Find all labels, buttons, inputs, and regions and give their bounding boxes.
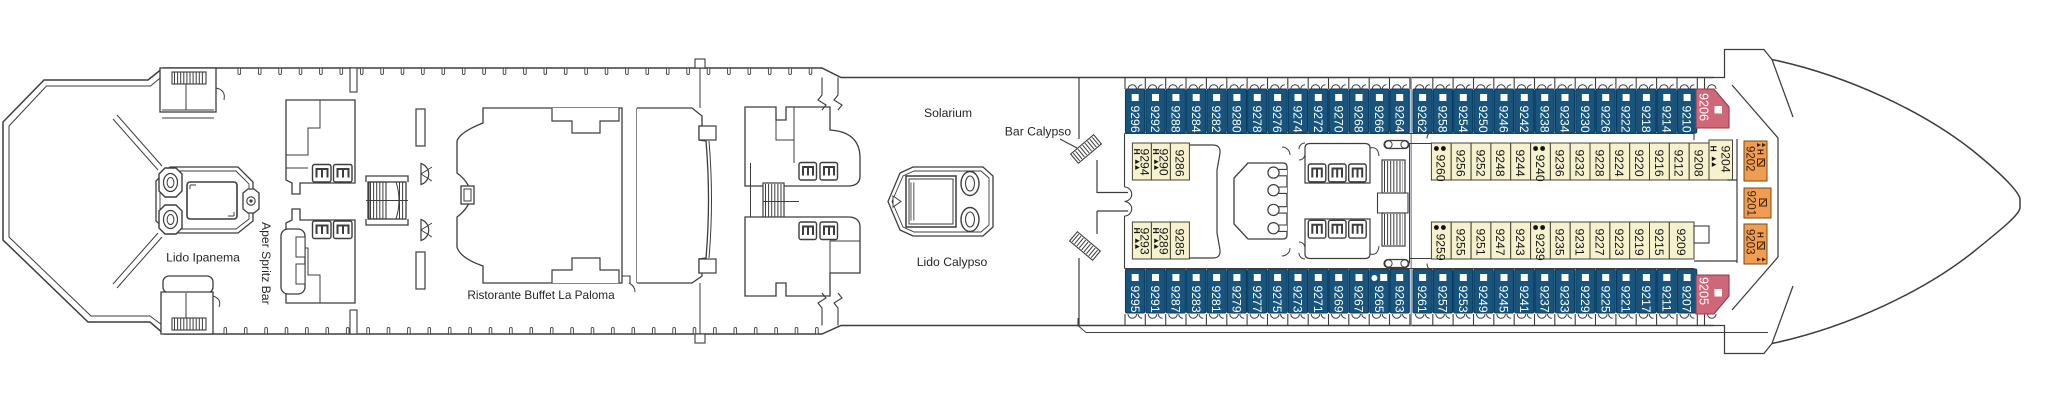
svg-text:H: H	[1756, 232, 1765, 238]
svg-text:9216: 9216	[1652, 150, 1666, 177]
svg-text:9275: 9275	[1270, 286, 1284, 313]
svg-text:9248: 9248	[1493, 150, 1507, 177]
svg-text:9286: 9286	[1172, 150, 1186, 177]
svg-text:9237: 9237	[1537, 286, 1551, 313]
svg-text:9268: 9268	[1352, 106, 1366, 133]
svg-text:9206: 9206	[1697, 93, 1711, 121]
svg-text:9229: 9229	[1578, 286, 1592, 313]
svg-text:9219: 9219	[1632, 229, 1646, 256]
svg-text:9238: 9238	[1537, 106, 1551, 133]
svg-text:H: H	[1151, 228, 1161, 234]
svg-text:9234: 9234	[1558, 106, 1572, 133]
svg-text:9276: 9276	[1270, 106, 1284, 133]
svg-text:9205: 9205	[1697, 277, 1711, 305]
svg-text:9209: 9209	[1674, 229, 1688, 256]
svg-text:9225: 9225	[1598, 286, 1612, 313]
svg-text:9233: 9233	[1558, 286, 1572, 313]
svg-text:9266: 9266	[1372, 106, 1386, 133]
svg-text:9243: 9243	[1513, 229, 1527, 256]
svg-text:9242: 9242	[1517, 106, 1531, 133]
svg-text:9260: 9260	[1434, 155, 1448, 182]
svg-text:Aper Spritz Bar: Aper Spritz Bar	[259, 222, 273, 305]
svg-text:9274: 9274	[1291, 106, 1305, 133]
svg-text:9252: 9252	[1473, 150, 1487, 177]
svg-text:9239: 9239	[1533, 234, 1547, 261]
svg-text:9231: 9231	[1573, 229, 1587, 256]
svg-text:9283: 9283	[1189, 286, 1203, 313]
svg-text:9292: 9292	[1148, 106, 1162, 133]
svg-text:9272: 9272	[1311, 106, 1325, 133]
svg-text:9246: 9246	[1497, 106, 1511, 133]
svg-text:H: H	[1756, 149, 1765, 155]
svg-text:9258: 9258	[1436, 106, 1450, 133]
svg-text:9259: 9259	[1434, 234, 1448, 261]
svg-text:9267: 9267	[1352, 286, 1366, 313]
svg-text:9203: 9203	[1743, 229, 1755, 255]
svg-text:9245: 9245	[1497, 286, 1511, 313]
svg-text:H: H	[1132, 228, 1142, 234]
svg-text:Bar Calypso: Bar Calypso	[1005, 125, 1072, 139]
svg-text:Ristorante Buffet La Paloma: Ristorante Buffet La Paloma	[467, 288, 615, 302]
svg-text:9269: 9269	[1331, 286, 1345, 313]
svg-text:H: H	[1709, 146, 1719, 152]
svg-text:9215: 9215	[1652, 229, 1666, 256]
svg-text:Solarium: Solarium	[924, 106, 972, 120]
svg-text:9271: 9271	[1311, 286, 1325, 313]
svg-text:Lido Calypso: Lido Calypso	[917, 255, 988, 269]
svg-text:9282: 9282	[1209, 106, 1223, 133]
svg-text:9279: 9279	[1230, 286, 1244, 313]
svg-text:9226: 9226	[1598, 106, 1612, 133]
svg-text:9284: 9284	[1189, 106, 1203, 133]
svg-text:9250: 9250	[1476, 106, 1490, 133]
svg-text:9256: 9256	[1454, 150, 1468, 177]
svg-text:9241: 9241	[1517, 286, 1531, 313]
svg-text:9204: 9204	[1719, 146, 1733, 173]
svg-text:9217: 9217	[1639, 286, 1653, 313]
svg-text:9207: 9207	[1680, 286, 1694, 313]
svg-text:9296: 9296	[1128, 106, 1142, 133]
svg-text:9214: 9214	[1659, 106, 1673, 133]
svg-text:9285: 9285	[1172, 229, 1186, 256]
svg-text:9202: 9202	[1743, 146, 1755, 172]
svg-text:9295: 9295	[1128, 286, 1142, 313]
svg-text:9273: 9273	[1291, 286, 1305, 313]
svg-text:9264: 9264	[1392, 106, 1406, 133]
svg-text:9280: 9280	[1230, 106, 1244, 133]
svg-text:H: H	[1132, 149, 1142, 155]
svg-text:9220: 9220	[1632, 150, 1646, 177]
svg-text:9251: 9251	[1473, 229, 1487, 256]
svg-text:9201: 9201	[1745, 191, 1757, 217]
svg-text:9211: 9211	[1659, 286, 1673, 312]
svg-text:9253: 9253	[1456, 286, 1470, 313]
svg-text:H: H	[1151, 149, 1161, 155]
svg-text:9265: 9265	[1372, 286, 1386, 313]
svg-text:9232: 9232	[1573, 150, 1587, 177]
svg-text:9249: 9249	[1476, 286, 1490, 313]
svg-text:9270: 9270	[1331, 106, 1345, 133]
svg-text:9255: 9255	[1454, 229, 1468, 256]
svg-text:9261: 9261	[1415, 286, 1429, 313]
svg-text:9277: 9277	[1250, 286, 1264, 313]
svg-text:9230: 9230	[1578, 106, 1592, 133]
svg-text:9244: 9244	[1513, 150, 1527, 177]
svg-text:9210: 9210	[1680, 106, 1694, 133]
svg-text:9218: 9218	[1639, 106, 1653, 133]
svg-text:9257: 9257	[1436, 286, 1450, 313]
svg-text:9278: 9278	[1250, 106, 1264, 133]
svg-text:9287: 9287	[1169, 286, 1183, 313]
svg-text:9262: 9262	[1415, 106, 1429, 133]
svg-text:9208: 9208	[1692, 150, 1706, 177]
svg-text:9227: 9227	[1592, 229, 1606, 256]
svg-text:9235: 9235	[1553, 229, 1567, 256]
svg-text:9263: 9263	[1392, 286, 1406, 313]
svg-text:9288: 9288	[1169, 106, 1183, 133]
svg-text:9221: 9221	[1619, 286, 1633, 313]
svg-text:9224: 9224	[1612, 150, 1626, 177]
svg-text:9240: 9240	[1533, 155, 1547, 182]
svg-text:9228: 9228	[1592, 150, 1606, 177]
svg-text:9236: 9236	[1553, 150, 1567, 177]
svg-text:9212: 9212	[1672, 150, 1686, 177]
svg-text:9291: 9291	[1148, 286, 1162, 313]
svg-text:Lido Ipanema: Lido Ipanema	[166, 251, 240, 265]
svg-text:9223: 9223	[1612, 229, 1626, 256]
svg-text:9247: 9247	[1493, 229, 1507, 256]
svg-text:9254: 9254	[1456, 106, 1470, 133]
svg-text:9222: 9222	[1619, 106, 1633, 133]
svg-text:9281: 9281	[1209, 286, 1223, 313]
